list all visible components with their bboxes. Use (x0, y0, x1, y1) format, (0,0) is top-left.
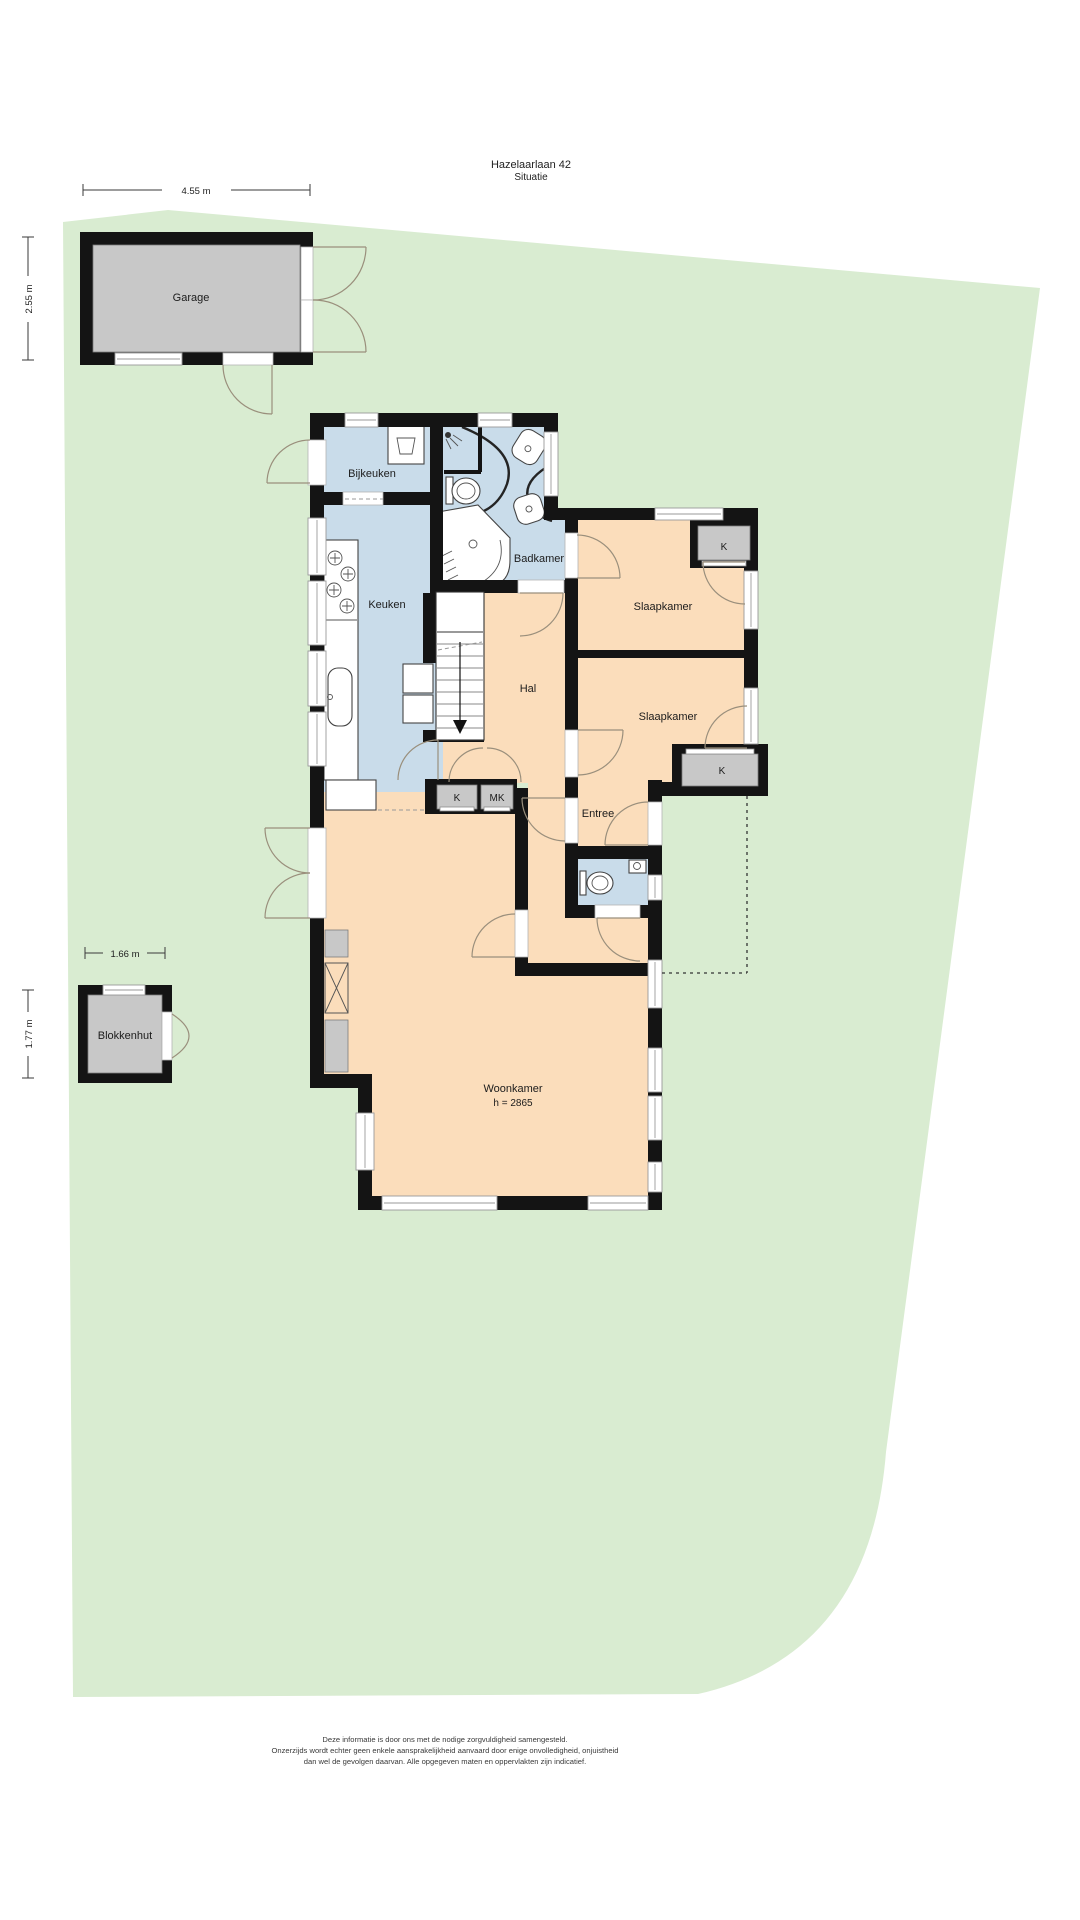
disclaimer-line3: dan wel de gevolgen daarvan. Alle opgege… (304, 1757, 586, 1766)
label-bijkeuken: Bijkeuken (348, 468, 396, 480)
toilet-icon (580, 871, 613, 895)
blokkenhut-window (103, 985, 145, 995)
blokkenhut-label: Blokkenhut (98, 1030, 152, 1042)
label-kast-hal: K (454, 793, 461, 804)
disclaimer-line1: Deze informatie is door ons met de nodig… (322, 1735, 567, 1744)
garage-window (115, 353, 182, 365)
blokkenhut-door-opening (162, 1012, 172, 1060)
label-entree: Entree (582, 808, 614, 820)
disclaimer: Deze informatie is door ons met de nodig… (271, 1735, 618, 1766)
label-slaapkamer-onder: Slaapkamer (639, 711, 698, 723)
blokkenhut-depth-value: 1.77 m (24, 1019, 35, 1048)
label-badkamer: Badkamer (514, 553, 564, 565)
bijkeuken-fixtures (388, 426, 424, 464)
cupboard (403, 695, 433, 723)
garage-side-door-opening (301, 300, 313, 352)
blokkenhut-width-value: 1.66 m (110, 949, 139, 960)
garage-label: Garage (173, 292, 210, 304)
label-kast-boven: K (721, 542, 728, 553)
chimney-niche (325, 930, 348, 1072)
garage-side-door-opening (301, 247, 313, 300)
garage-width-value: 4.55 m (181, 186, 210, 197)
label-woonkamer-hoogte: h = 2865 (493, 1098, 533, 1109)
washbasin-icon (388, 426, 424, 464)
label-slaapkamer-boven: Slaapkamer (634, 601, 693, 613)
plan-title: Hazelaarlaan 42 Situatie (491, 159, 571, 183)
label-hal: Hal (520, 683, 537, 695)
cupboard (403, 664, 433, 693)
fireplace-icon (325, 963, 348, 1013)
disclaimer-line2: Onzerzijds wordt echter geen enkele aans… (271, 1746, 618, 1755)
label-kast-onder: K (719, 766, 726, 777)
title-subtitle: Situatie (514, 172, 548, 183)
garage-depth-dimension: 2.55 m (22, 237, 35, 360)
label-meterkast: MK (490, 793, 505, 804)
floorplan-page: Hazelaarlaan 42 Situatie Garage 4.55 m 2… (0, 0, 1080, 1920)
garage-rear-door-opening (223, 353, 273, 365)
garage-depth-value: 2.55 m (24, 284, 35, 313)
garage-width-dimension: 4.55 m (83, 184, 310, 197)
blokkenhut-depth-dimension: 1.77 m (22, 990, 35, 1078)
title-address: Hazelaarlaan 42 (491, 159, 571, 171)
label-woonkamer: Woonkamer (483, 1083, 542, 1095)
small-sink-icon (629, 860, 646, 873)
label-keuken: Keuken (368, 599, 405, 611)
kitchen-sink-icon (328, 668, 353, 726)
